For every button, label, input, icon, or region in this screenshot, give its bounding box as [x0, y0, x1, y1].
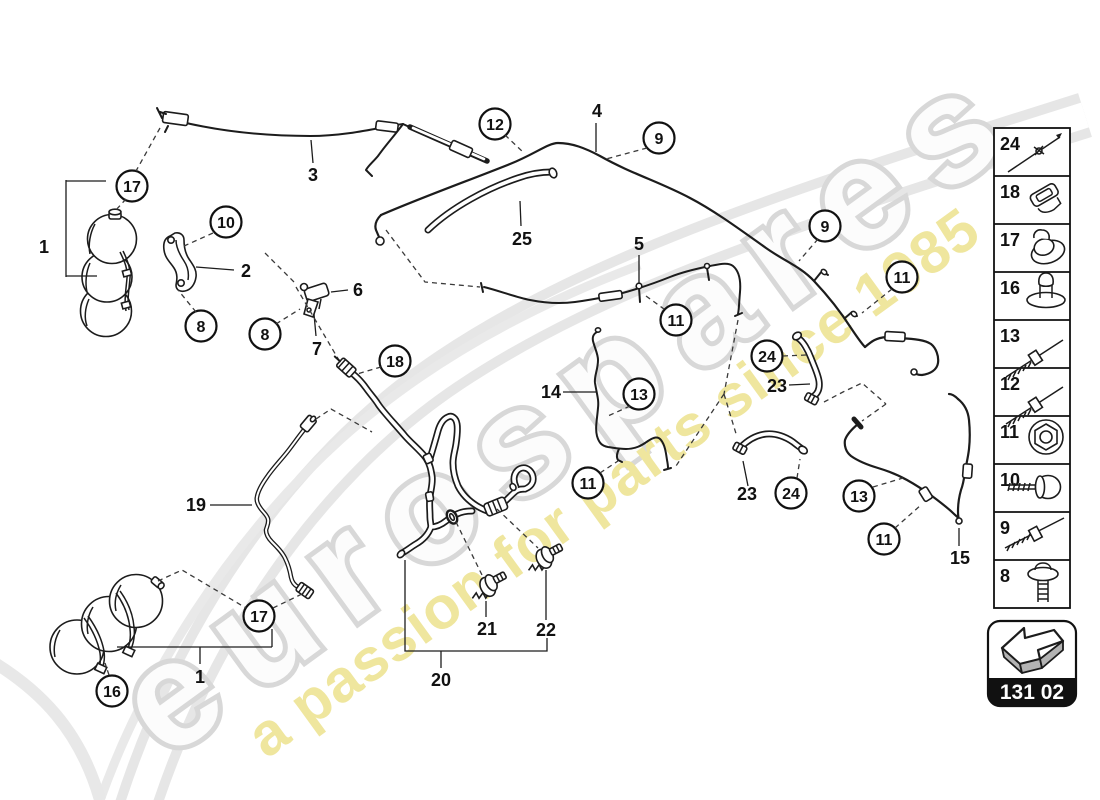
svg-text:13: 13 [850, 489, 868, 506]
svg-text:131 02: 131 02 [1000, 681, 1064, 704]
svg-text:1: 1 [195, 667, 205, 687]
svg-text:11: 11 [894, 270, 911, 287]
svg-text:9: 9 [821, 219, 830, 236]
svg-text:15: 15 [950, 548, 970, 568]
svg-text:24: 24 [758, 349, 776, 366]
svg-text:11: 11 [876, 532, 893, 549]
svg-text:8: 8 [197, 319, 206, 336]
svg-text:5: 5 [634, 234, 644, 254]
svg-text:13: 13 [1000, 326, 1020, 346]
svg-text:20: 20 [431, 670, 451, 690]
svg-text:25: 25 [512, 229, 532, 249]
svg-text:11: 11 [580, 476, 597, 493]
svg-text:17: 17 [123, 179, 141, 196]
svg-text:16: 16 [1000, 278, 1020, 298]
svg-text:14: 14 [541, 382, 561, 402]
svg-text:2: 2 [241, 261, 251, 281]
svg-text:8: 8 [1000, 566, 1010, 586]
svg-text:24: 24 [1000, 134, 1020, 154]
svg-text:16: 16 [103, 684, 121, 701]
svg-text:17: 17 [250, 609, 268, 626]
svg-text:19: 19 [186, 495, 206, 515]
svg-text:9: 9 [655, 131, 664, 148]
svg-text:13: 13 [630, 387, 648, 404]
svg-text:9: 9 [1000, 518, 1010, 538]
svg-text:12: 12 [1000, 374, 1020, 394]
svg-text:10: 10 [1000, 470, 1020, 490]
svg-text:23: 23 [767, 376, 787, 396]
svg-text:7: 7 [312, 339, 322, 359]
svg-text:24: 24 [782, 486, 800, 503]
svg-text:4: 4 [592, 101, 602, 121]
svg-text:18: 18 [1000, 182, 1020, 202]
svg-text:23: 23 [737, 484, 757, 504]
svg-text:12: 12 [486, 117, 504, 134]
svg-text:18: 18 [386, 354, 404, 371]
svg-text:11: 11 [1000, 422, 1019, 442]
svg-text:6: 6 [353, 280, 363, 300]
svg-text:8: 8 [261, 327, 270, 344]
svg-text:1: 1 [39, 237, 49, 257]
svg-text:17: 17 [1000, 230, 1020, 250]
svg-text:3: 3 [308, 165, 318, 185]
svg-text:11: 11 [668, 313, 685, 330]
svg-text:21: 21 [477, 619, 497, 639]
svg-text:10: 10 [217, 215, 235, 232]
svg-text:22: 22 [536, 620, 556, 640]
